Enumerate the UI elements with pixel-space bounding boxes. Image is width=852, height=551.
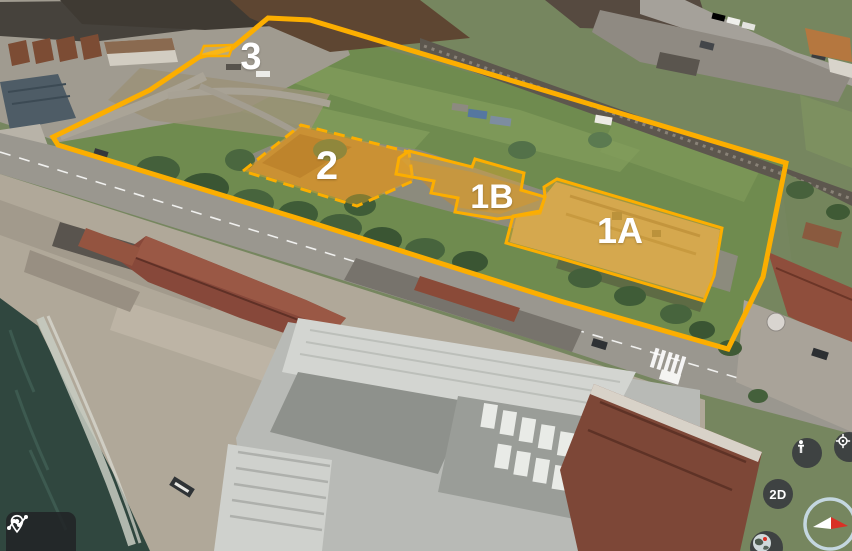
- parcel-label-2: 2: [316, 144, 338, 188]
- globe-icon: [750, 531, 774, 551]
- satellite-map-view: 321B1A 2D: [0, 0, 852, 551]
- parcel-label-3: 3: [240, 36, 261, 78]
- compass-control[interactable]: [770, 464, 852, 551]
- pegman-icon: [792, 438, 810, 456]
- parcel-3-outline: [200, 45, 233, 56]
- site-boundary: [53, 18, 786, 349]
- parcel-label-1B: 1B: [470, 178, 513, 216]
- compass-needle-north: [831, 517, 848, 529]
- parcel-label-1A: 1A: [597, 210, 643, 251]
- compass-needle-south: [813, 517, 831, 529]
- my-location-icon: [834, 432, 852, 450]
- map-tools-panel: [6, 512, 76, 551]
- annotation-layer: 321B1A: [0, 0, 852, 551]
